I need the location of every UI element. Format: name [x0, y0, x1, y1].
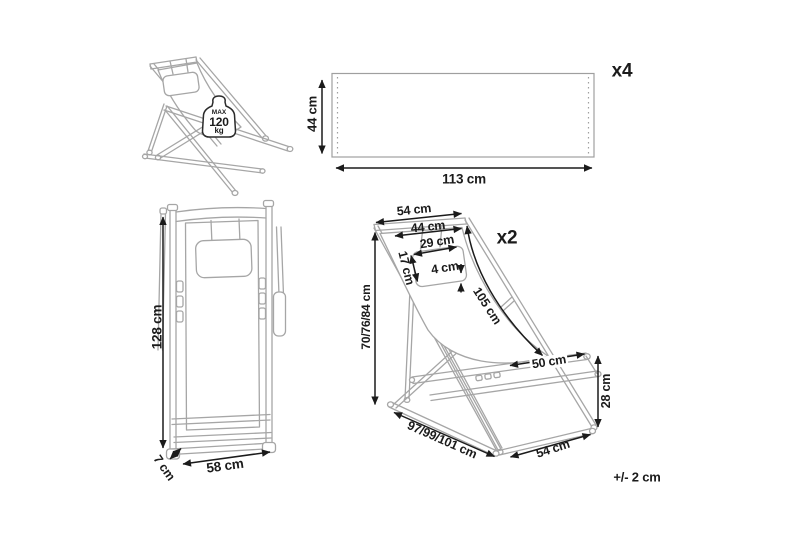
dim-fabric-width: 113 cm: [442, 172, 486, 186]
dim-frame-heights: 70/76/84 cm: [360, 284, 372, 349]
dimension-diagram: x4 44 cm 113 cm 128 cm 7 cm 58 cm 54 cm …: [0, 0, 800, 533]
headrest-pillow-front: [195, 239, 252, 278]
perspective-quantity: x2: [497, 229, 518, 248]
headrest-pillow-sketch: [162, 72, 199, 97]
dim-seat-front-height: 28 cm: [600, 374, 613, 408]
max-load-unit: kg: [215, 127, 224, 135]
dim-folded-height: 128 cm: [150, 305, 164, 350]
folded-chair-sketch: [158, 201, 286, 460]
fabric-panel-sketch: [332, 74, 594, 158]
fabric-panel-quantity: x4: [612, 62, 633, 81]
dim-fabric-height: 44 cm: [306, 96, 319, 132]
tolerance-note: +/- 2 cm: [613, 471, 660, 484]
